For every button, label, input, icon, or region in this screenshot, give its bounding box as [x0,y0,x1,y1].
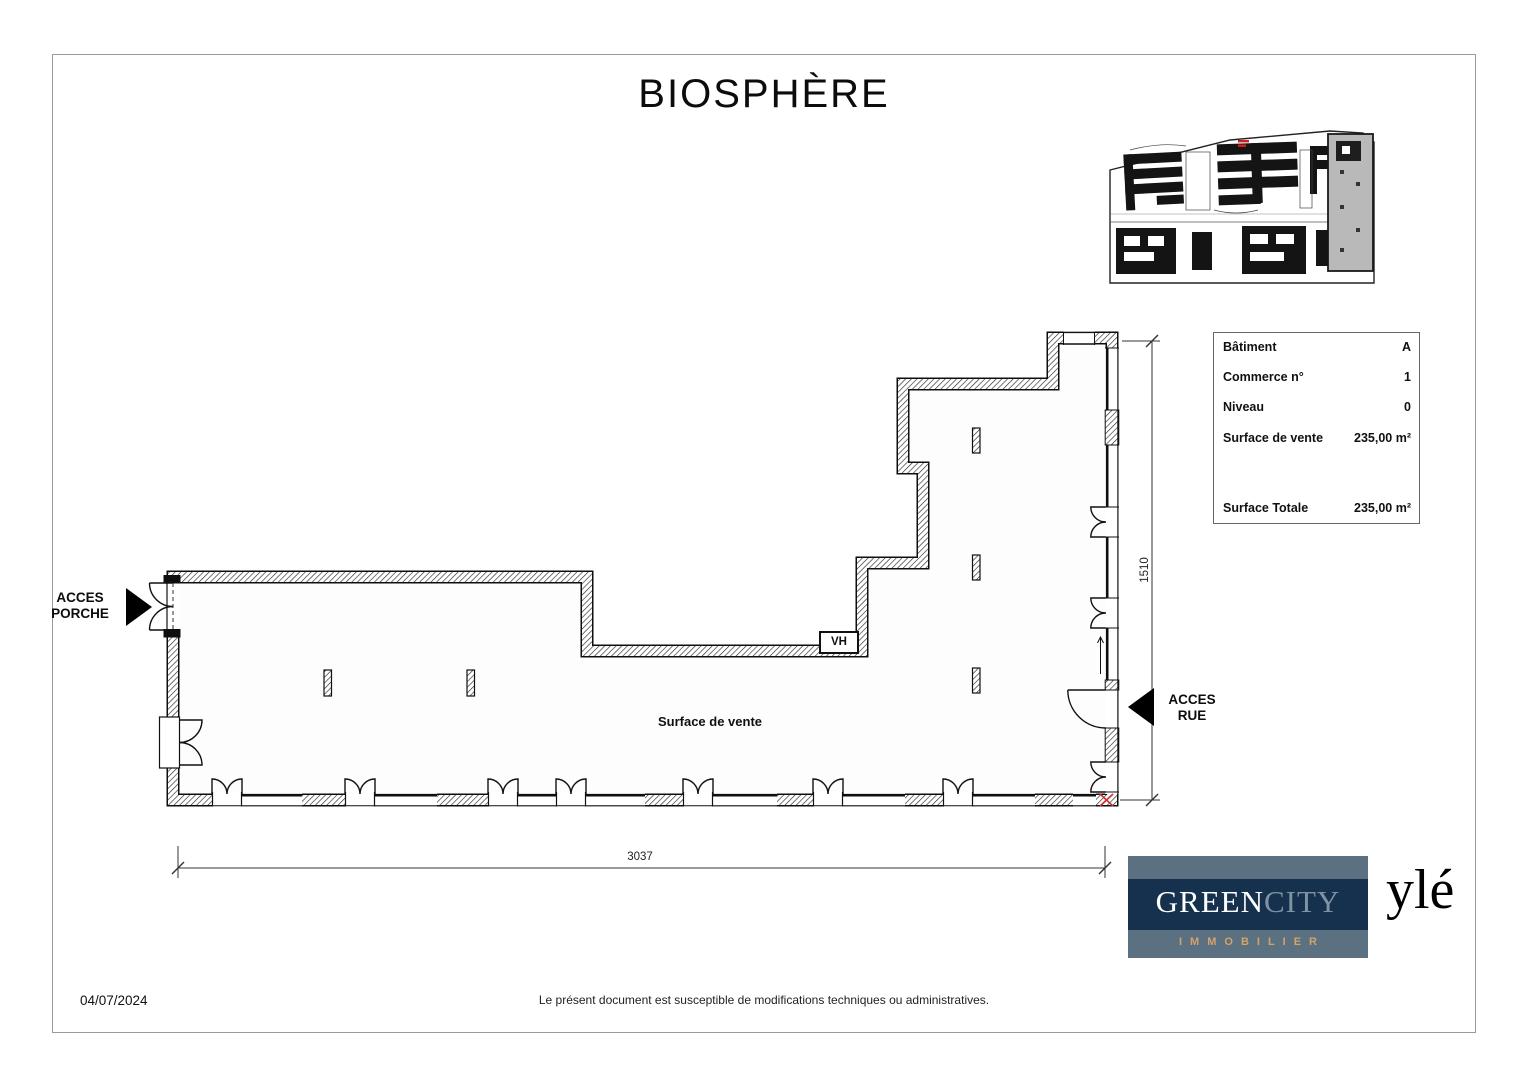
plan-document: BIOSPHÈRE Bâtiment A Commerce n° 1 Nivea… [0,0,1528,1080]
page-title: BIOSPHÈRE [0,72,1528,117]
info-row-surface-vente: Surface de vente 235,00 m² [1214,430,1419,446]
acces-porche-label: ACCES PORCHE [40,590,120,622]
site-plan-map [1110,131,1374,283]
info-value: 235,00 m² [1354,430,1411,446]
window-top [1063,332,1095,345]
acces-porche-door [150,575,181,638]
acces-porche-arrow-icon [126,588,152,626]
info-row-commerce: Commerce n° 1 [1214,369,1419,385]
info-value: 235,00 m² [1354,500,1411,516]
info-value: A [1402,339,1411,355]
floor-plan-walls [173,338,1112,800]
site-plan-highlighted-building [1328,134,1373,271]
info-value: 0 [1404,399,1411,415]
vh-duct-label: VH [819,631,859,654]
greencity-logo: GREENCITY IMMOBILIER [1128,856,1368,958]
info-row-niveau: Niveau 0 [1214,399,1419,415]
yle-logo: ylé [1386,858,1466,922]
info-label: Surface Totale [1223,500,1308,516]
info-label: Bâtiment [1223,339,1276,355]
info-row-surface-totale: Surface Totale 235,00 m² [1214,500,1419,516]
room-label: Surface de vente [600,714,820,729]
info-label: Niveau [1223,399,1264,415]
acces-rue-arrow-icon [1128,688,1154,726]
greencity-logo-subtitle: IMMOBILIER [1128,936,1368,948]
info-value: 1 [1404,369,1411,385]
disclaimer-text: Le présent document est susceptible de m… [0,993,1528,1007]
acces-rue-label: ACCES RUE [1164,692,1220,724]
info-label: Surface de vente [1223,430,1323,446]
greencity-logo-name: GREENCITY [1128,884,1368,920]
info-table: Bâtiment A Commerce n° 1 Niveau 0 Surfac… [1213,332,1420,524]
dimension-width-label: 3037 [600,851,680,863]
info-label: Commerce n° [1223,369,1304,385]
dimension-height-label: 1510 [1139,540,1153,600]
info-row-batiment: Bâtiment A [1214,339,1419,355]
